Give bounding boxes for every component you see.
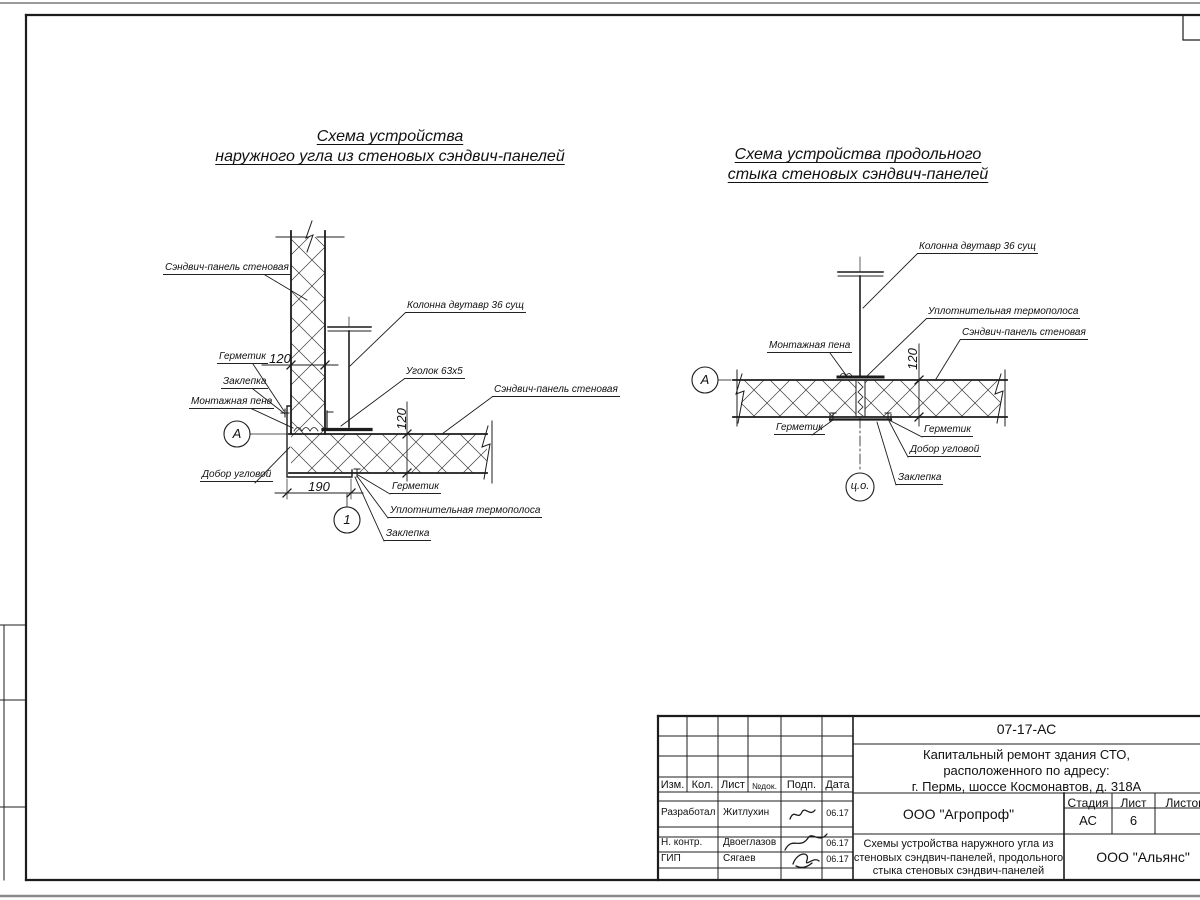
panel-joint [856,380,865,417]
label-mounting-foam: Монтажная пена [767,340,852,353]
signatures [785,810,827,867]
right-diagram-title-line1: Схема устройства продольного [658,145,1058,165]
stage-header: Стадия [1064,796,1112,810]
row-role-ncontr: Н. контр. [661,837,702,848]
label-corner-trim: Добор угловой [908,444,981,457]
center-axis-marker: ц.о. [845,480,875,492]
row-role-gip: ГИП [661,853,681,864]
dimension-120-horizontal: 120 [262,351,298,366]
sheet-header: Лист [1112,796,1155,810]
label-sealant-bottom: Герметик [390,481,441,494]
left-leader-lines [252,275,492,541]
stage-value: АС [1064,813,1112,828]
label-rivet-left: Заклепка [221,376,268,389]
project-name-line3: г. Пермь, шоссе Космонавтов, д. 318А [853,779,1200,795]
left-diagram-title-line2: наружного угла из стеновых сэндвич-панел… [190,147,590,167]
detail-marker-1: 1 [338,512,356,527]
left-margin-table [0,625,26,880]
row-name-ncontr: Двоеглазов [723,837,776,848]
label-sandwich-panel-top: Сэндвич-панель стеновая [163,262,291,275]
col-header-podp: Подп. [781,779,822,791]
label-column-ibeam: Колонна двутавр 36 сущ [917,241,1038,254]
diagram-right [692,254,1007,501]
right-ibeam-column [838,257,883,377]
label-sealant-right: Герметик [922,424,973,437]
col-header-list: Лист [718,779,748,791]
right-panel [741,380,1001,417]
label-thermo-strip: Уплотнительная термополоса [926,306,1080,319]
sheet-title-line2: стеновых сэндвич-панелей, продольного [853,852,1064,866]
sheets-header: Листов [1155,796,1200,810]
col-header-data: Дата [822,779,853,791]
row-name-developer: Житлухин [723,807,769,818]
label-angle: Уголок 63х5 [404,366,465,379]
left-horizontal-panel [291,434,487,473]
signature-dvoeglazov [785,834,827,850]
label-sealant-left: Герметик [217,351,268,364]
dimension-120-vertical: 120 [905,339,919,379]
label-corner-trim: Добор угловой [200,469,273,482]
doc-number: 07-17-АС [853,721,1200,737]
node-marker-a: А [228,426,246,441]
contractor-org: ООО "Альянс" [1064,849,1200,865]
col-header-kol: Кол. [687,779,718,791]
row-date-ncontr: 06.17 [822,838,853,848]
label-sandwich-panel-right: Сэндвич-панель стеновая [492,384,620,397]
left-vertical-panel [291,237,325,434]
sheet-title-line3: стыка стеновых сэндвич-панелей [853,865,1064,879]
right-diagram-title: Схема устройства продольного стыка стено… [658,145,1058,185]
project-name: Капитальный ремонт здания СТО, расположе… [853,747,1200,795]
right-diagram-title-line2: стыка стеновых сэндвич-панелей [658,165,1058,185]
col-header-izm: Изм. [658,779,687,791]
dimension-120-vertical: 120 [394,399,408,439]
col-header-ndok: №док. [748,781,781,791]
node-marker-a: А [696,372,714,387]
label-sandwich-panel: Сэндвич-панель стеновая [960,327,1088,340]
signature-zhitlukhin [790,810,815,819]
label-sealant-left: Герметик [774,422,825,435]
sheet-title-line1: Схемы устройства наружного угла из [853,838,1064,852]
row-date-gip: 06.17 [822,854,853,864]
left-diagram-title: Схема устройства наружного угла из стено… [190,127,590,167]
label-thermo-strip: Уплотнительная термополоса [388,505,542,518]
signature-syagaev [793,854,819,867]
label-mounting-foam: Монтажная пена [189,396,274,409]
sheet-number-value: 6 [1112,813,1155,828]
label-rivet: Заклепка [896,472,943,485]
row-date-developer: 06.17 [822,808,853,818]
sheet-title: Схемы устройства наружного угла из стено… [853,838,1064,879]
left-diagram-title-line1: Схема устройства [190,127,590,147]
dimension-190: 190 [303,479,335,494]
drawing-sheet: Схема устройства наружного угла из стено… [0,0,1200,900]
row-role-developer: Разработал [661,807,715,818]
label-rivet-bottom: Заклепка [384,528,431,541]
left-ibeam-column [323,317,371,430]
developer-org: ООО "Агропроф" [853,806,1064,822]
row-name-gip: Сягаев [723,853,756,864]
project-name-line2: расположенного по адресу: [853,763,1200,779]
label-column-ibeam: Колонна двутавр 36 сущ [405,300,526,313]
project-name-line1: Капитальный ремонт здания СТО, [853,747,1200,763]
